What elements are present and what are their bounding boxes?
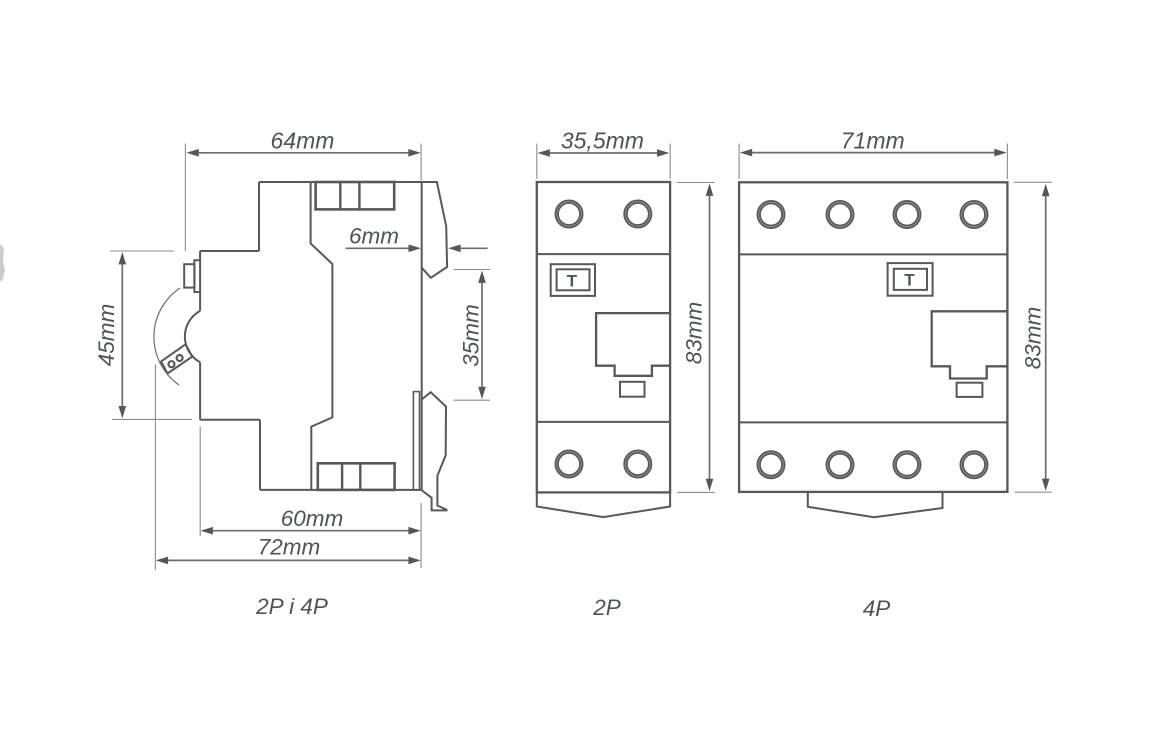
svg-text:64mm: 64mm — [271, 127, 335, 153]
svg-text:6mm: 6mm — [349, 224, 399, 249]
svg-text:2P: 2P — [592, 595, 621, 620]
svg-text:71mm: 71mm — [841, 127, 905, 153]
svg-text:45mm: 45mm — [94, 304, 119, 367]
svg-text:T: T — [567, 272, 578, 291]
svg-text:60mm: 60mm — [281, 506, 344, 531]
svg-text:35mm: 35mm — [459, 304, 484, 367]
svg-text:4P: 4P — [863, 596, 891, 621]
svg-text:72mm: 72mm — [258, 535, 321, 560]
svg-text:2P i 4P: 2P i 4P — [255, 594, 328, 619]
svg-text:35,5mm: 35,5mm — [561, 127, 644, 153]
svg-text:83mm: 83mm — [1021, 307, 1046, 370]
svg-text:83mm: 83mm — [682, 302, 707, 365]
svg-text:T: T — [904, 271, 915, 290]
